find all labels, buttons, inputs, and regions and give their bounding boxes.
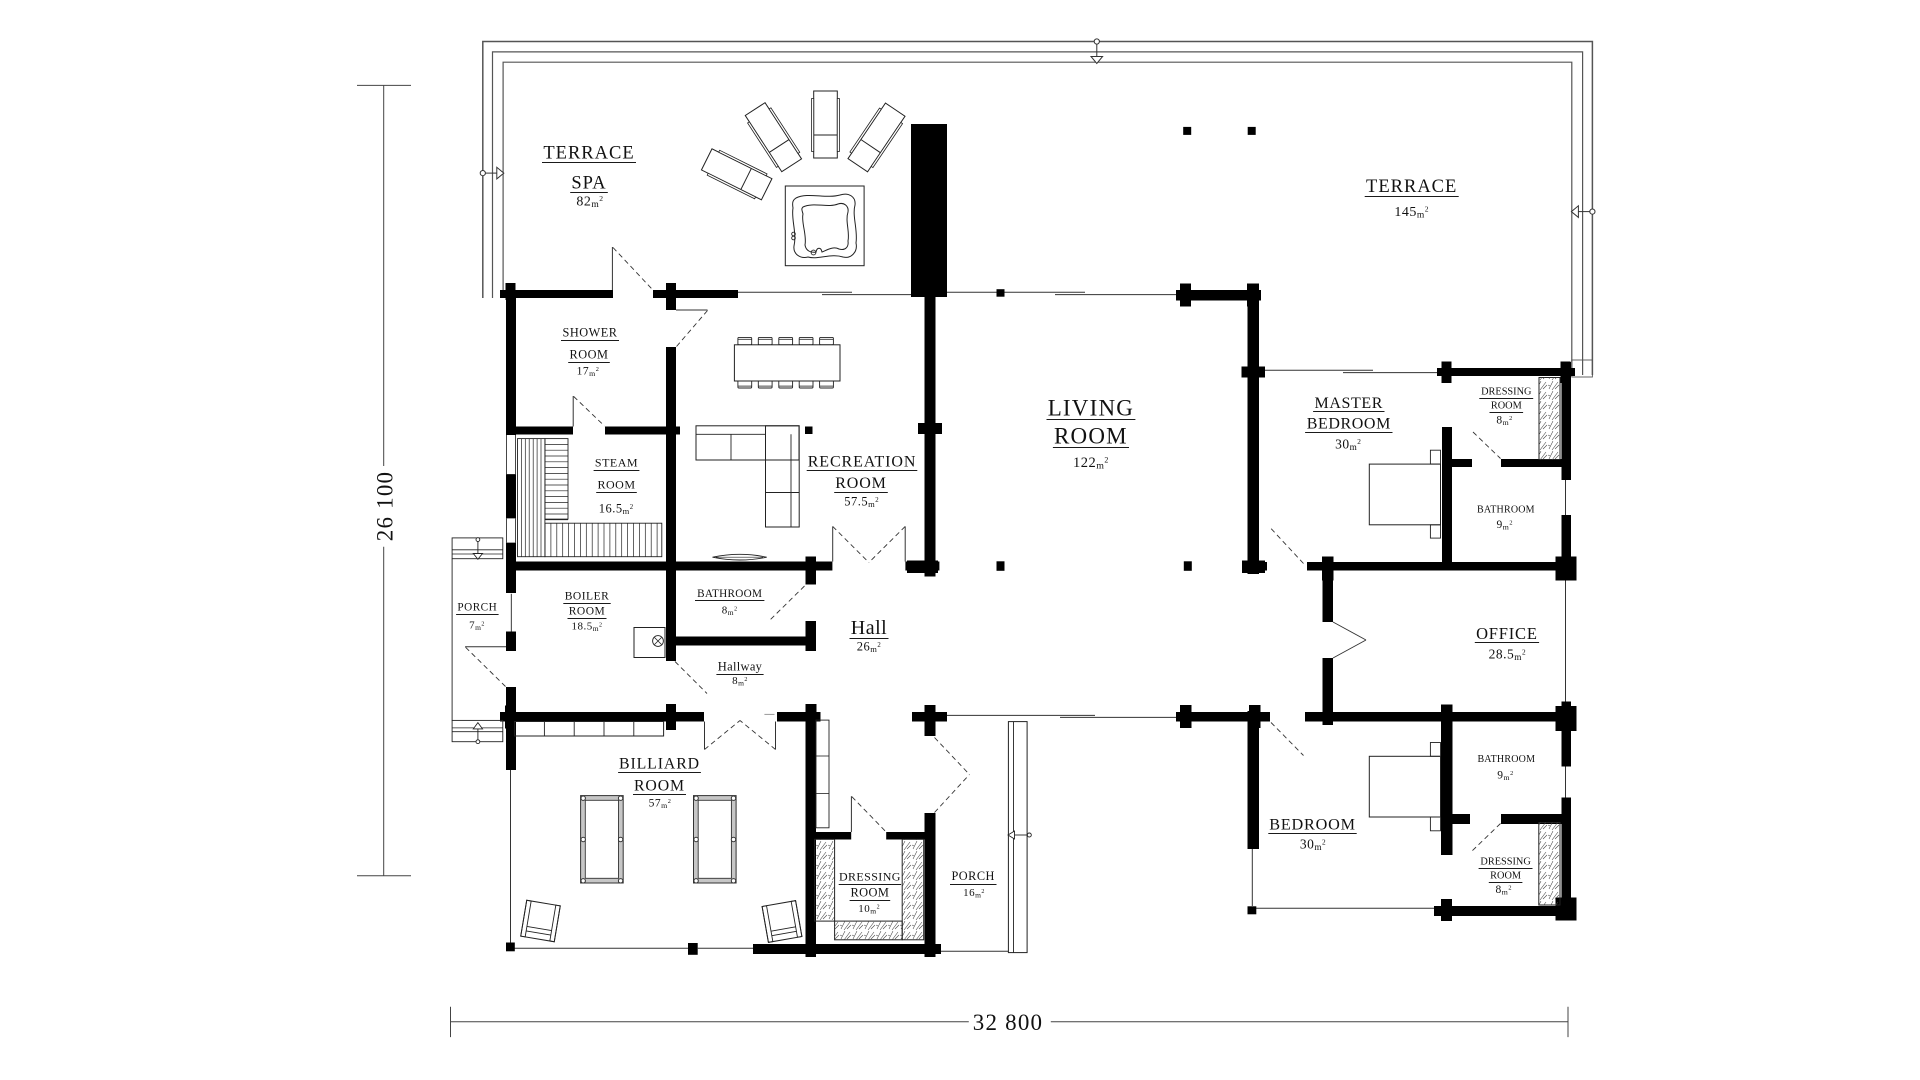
svg-text:145m2: 145m2: [1394, 205, 1429, 221]
svg-text:Hallway: Hallway: [718, 660, 763, 674]
svg-text:RECREATION: RECREATION: [808, 454, 917, 471]
svg-text:BEDROOM: BEDROOM: [1269, 816, 1356, 834]
svg-text:BEDROOM: BEDROOM: [1307, 416, 1391, 433]
svg-text:SPA: SPA: [571, 174, 606, 194]
svg-text:ROOM: ROOM: [570, 348, 609, 362]
svg-text:TERRACE: TERRACE: [1366, 177, 1457, 197]
svg-text:ROOM: ROOM: [1490, 871, 1521, 882]
svg-text:ROOM: ROOM: [851, 885, 890, 899]
svg-text:OFFICE: OFFICE: [1476, 624, 1538, 643]
svg-text:Hall: Hall: [851, 617, 887, 639]
svg-text:DRESSING: DRESSING: [1480, 857, 1531, 868]
svg-text:BILLIARD: BILLIARD: [619, 755, 700, 772]
svg-text:PORCH: PORCH: [457, 602, 497, 614]
svg-text:SHOWER: SHOWER: [563, 325, 618, 339]
svg-text:ROOM: ROOM: [1054, 424, 1128, 449]
svg-text:ROOM: ROOM: [634, 778, 685, 795]
svg-text:BATHROOM: BATHROOM: [1477, 754, 1535, 765]
svg-text:ROOM: ROOM: [1491, 401, 1522, 412]
svg-text:LIVING: LIVING: [1048, 396, 1134, 421]
svg-text:DRESSING: DRESSING: [1481, 387, 1532, 398]
svg-text:ROOM: ROOM: [835, 475, 887, 492]
svg-text:32 800: 32 800: [973, 1010, 1043, 1035]
svg-text:PORCH: PORCH: [951, 869, 995, 883]
svg-text:TERRACE: TERRACE: [543, 144, 634, 164]
svg-text:DRESSING: DRESSING: [839, 870, 901, 884]
svg-text:122m2: 122m2: [1073, 455, 1109, 472]
svg-text:ROOM: ROOM: [569, 606, 606, 618]
svg-text:BOILER: BOILER: [565, 590, 610, 602]
svg-text:ROOM: ROOM: [597, 478, 635, 492]
svg-text:BATHROOM: BATHROOM: [1477, 505, 1535, 516]
svg-text:STEAM: STEAM: [595, 456, 638, 470]
svg-text:26 100: 26 100: [373, 471, 398, 541]
svg-text:BATHROOM: BATHROOM: [697, 588, 762, 600]
svg-text:MASTER: MASTER: [1315, 395, 1384, 412]
